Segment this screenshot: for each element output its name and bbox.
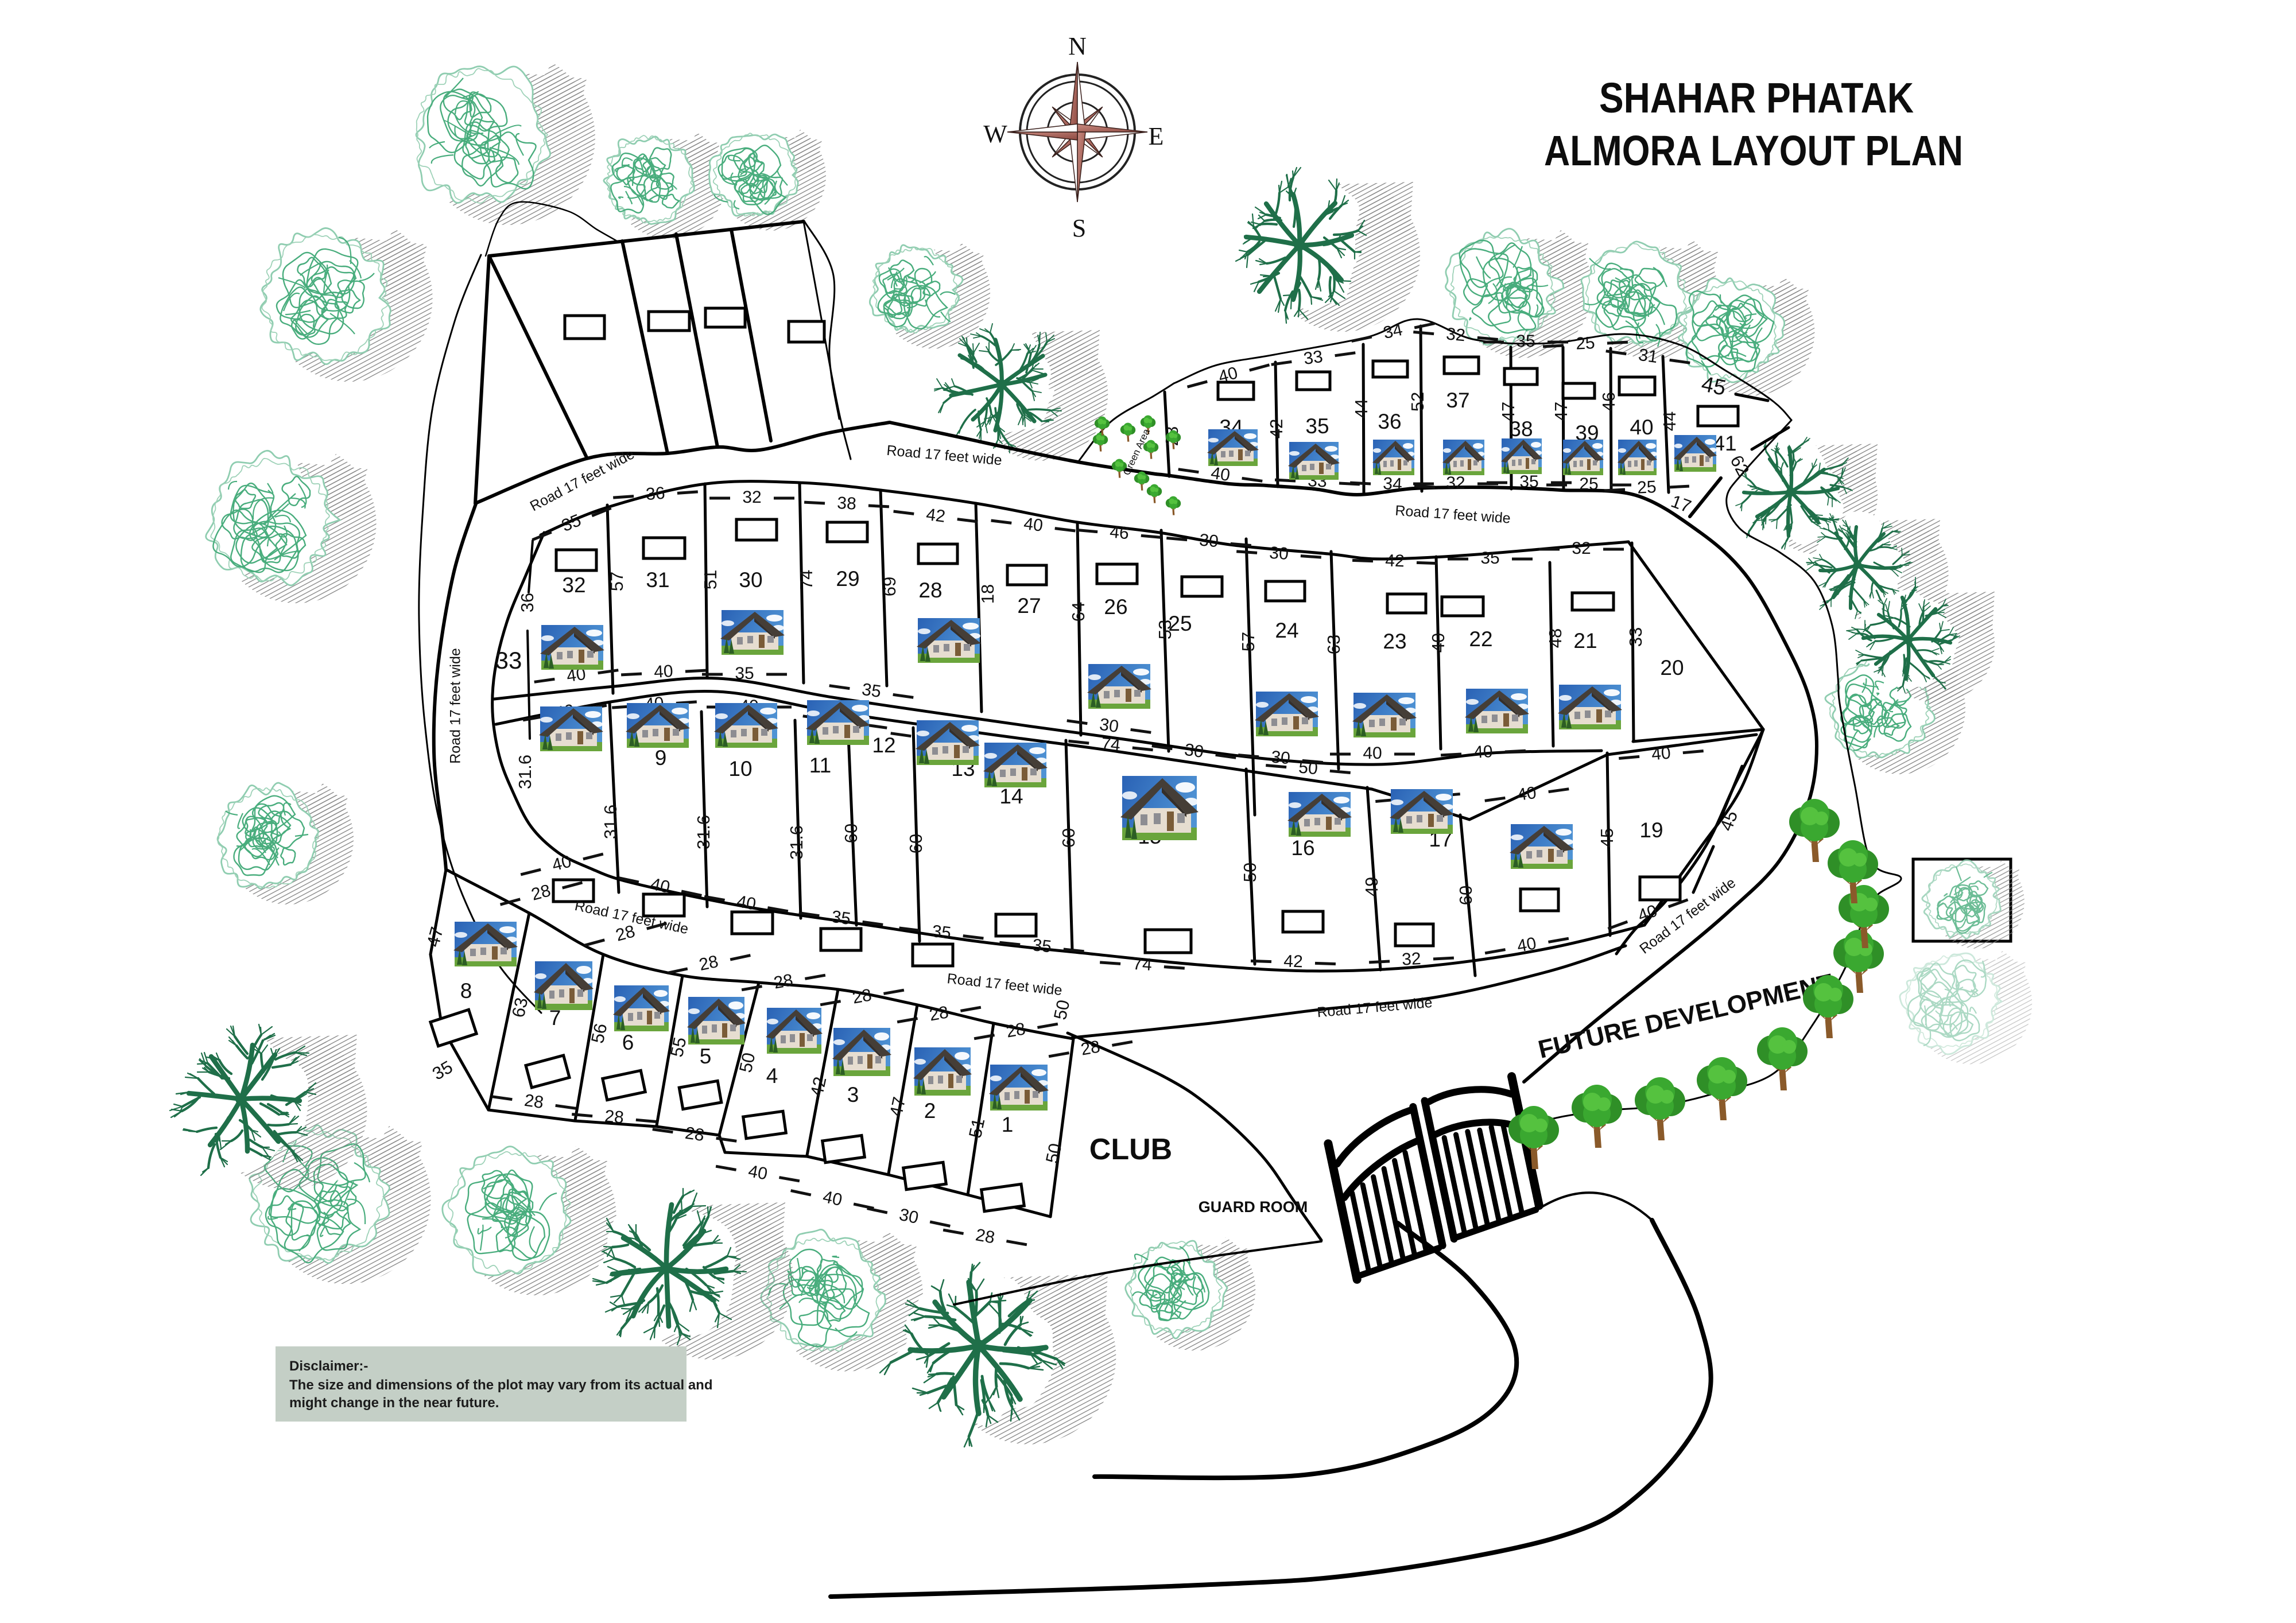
svg-text:28: 28 — [523, 1091, 545, 1112]
svg-text:24: 24 — [1275, 619, 1298, 642]
svg-text:4: 4 — [766, 1064, 778, 1088]
svg-text:28: 28 — [1004, 1019, 1027, 1041]
svg-text:50: 50 — [1298, 758, 1318, 779]
svg-text:32: 32 — [1446, 473, 1465, 492]
svg-text:74: 74 — [796, 570, 816, 589]
svg-text:35: 35 — [931, 922, 952, 943]
svg-text:12: 12 — [872, 733, 895, 757]
svg-text:40: 40 — [1428, 633, 1448, 653]
svg-text:42: 42 — [925, 505, 947, 526]
svg-text:SHAHAR PHATAK: SHAHAR PHATAK — [1599, 74, 1914, 122]
svg-text:74: 74 — [1100, 734, 1122, 755]
svg-text:38: 38 — [1509, 417, 1533, 441]
svg-text:8: 8 — [460, 979, 472, 1003]
svg-text:5: 5 — [700, 1045, 712, 1068]
svg-text:44: 44 — [1659, 411, 1680, 431]
svg-text:38: 38 — [837, 494, 857, 514]
svg-text:CLUB: CLUB — [1089, 1133, 1172, 1166]
svg-text:16: 16 — [1291, 836, 1314, 860]
svg-text:40: 40 — [653, 662, 673, 682]
svg-text:27: 27 — [1017, 594, 1041, 618]
svg-text:40: 40 — [1023, 514, 1044, 535]
svg-text:52: 52 — [1407, 392, 1428, 411]
svg-text:2: 2 — [924, 1099, 936, 1123]
svg-text:ALMORA LAYOUT PLAN: ALMORA LAYOUT PLAN — [1544, 127, 1963, 174]
svg-text:60: 60 — [1058, 828, 1079, 848]
svg-text:E: E — [1149, 122, 1164, 150]
svg-text:Road 17 feet wide: Road 17 feet wide — [448, 648, 464, 764]
svg-text:10: 10 — [728, 757, 752, 781]
svg-text:50: 50 — [1240, 863, 1260, 882]
svg-text:74: 74 — [1132, 954, 1153, 974]
svg-text:50: 50 — [735, 1051, 759, 1074]
svg-text:40: 40 — [1516, 783, 1538, 805]
svg-text:W: W — [983, 120, 1007, 148]
svg-text:31: 31 — [1637, 345, 1659, 367]
svg-text:40: 40 — [1209, 464, 1231, 485]
svg-text:47: 47 — [1551, 402, 1571, 421]
svg-text:50: 50 — [1050, 998, 1073, 1022]
svg-text:55: 55 — [666, 1035, 690, 1059]
svg-text:1: 1 — [1002, 1113, 1014, 1136]
svg-text:51: 51 — [700, 570, 720, 589]
svg-text:19: 19 — [1639, 818, 1663, 842]
svg-text:14: 14 — [999, 785, 1023, 808]
svg-text:28: 28 — [772, 970, 794, 992]
svg-text:The size and dimensions of the: The size and dimensions of the plot may … — [289, 1377, 713, 1393]
svg-text:42: 42 — [806, 1075, 830, 1098]
svg-text:3: 3 — [847, 1083, 859, 1106]
svg-text:31.6: 31.6 — [786, 825, 806, 860]
svg-text:40: 40 — [1473, 742, 1493, 762]
svg-text:32: 32 — [562, 573, 585, 597]
svg-text:32: 32 — [742, 488, 761, 507]
svg-text:22: 22 — [1469, 627, 1492, 651]
svg-text:30: 30 — [1269, 543, 1289, 564]
svg-text:28: 28 — [1079, 1037, 1102, 1059]
svg-text:31: 31 — [646, 568, 669, 592]
svg-text:35: 35 — [830, 907, 852, 929]
svg-text:S: S — [1072, 214, 1086, 242]
svg-text:45: 45 — [1699, 372, 1728, 401]
svg-text:34: 34 — [1383, 474, 1403, 494]
svg-text:21: 21 — [1573, 629, 1597, 653]
svg-text:40: 40 — [1363, 744, 1382, 763]
svg-text:57: 57 — [607, 572, 627, 591]
svg-text:25: 25 — [1579, 475, 1598, 494]
svg-text:N: N — [1068, 32, 1087, 60]
svg-text:28: 28 — [918, 578, 942, 602]
svg-text:49: 49 — [1362, 877, 1382, 896]
svg-text:42: 42 — [1283, 952, 1304, 971]
svg-text:35: 35 — [735, 664, 754, 683]
svg-text:32: 32 — [1572, 539, 1591, 558]
svg-text:35: 35 — [1480, 549, 1499, 568]
svg-text:45: 45 — [1597, 828, 1617, 848]
svg-text:47: 47 — [886, 1095, 909, 1119]
svg-text:25: 25 — [1575, 333, 1595, 354]
svg-text:31.6: 31.6 — [693, 815, 713, 849]
svg-text:44: 44 — [1351, 399, 1371, 418]
svg-text:63: 63 — [508, 996, 532, 1019]
svg-text:31.6: 31.6 — [600, 805, 620, 839]
svg-text:34: 34 — [1382, 320, 1405, 343]
svg-text:11: 11 — [809, 754, 831, 777]
svg-text:26: 26 — [1104, 595, 1127, 619]
svg-text:9: 9 — [655, 746, 667, 770]
svg-text:37: 37 — [1446, 389, 1469, 412]
svg-text:23: 23 — [1383, 630, 1406, 653]
svg-text:30: 30 — [1183, 740, 1205, 762]
svg-text:33: 33 — [1302, 347, 1324, 368]
svg-text:60: 60 — [1456, 886, 1476, 905]
svg-text:63: 63 — [1324, 635, 1344, 654]
svg-text:28: 28 — [974, 1225, 996, 1247]
svg-text:41: 41 — [1713, 432, 1736, 455]
svg-text:30: 30 — [739, 568, 762, 592]
svg-text:36: 36 — [517, 593, 537, 612]
svg-text:69: 69 — [879, 577, 899, 596]
svg-text:20: 20 — [1660, 656, 1684, 680]
svg-text:25: 25 — [1636, 477, 1657, 498]
svg-text:30: 30 — [1199, 531, 1219, 552]
svg-text:42: 42 — [1266, 419, 1286, 438]
svg-text:6: 6 — [622, 1031, 634, 1054]
svg-text:28: 28 — [684, 1124, 705, 1145]
svg-text:56: 56 — [587, 1022, 611, 1045]
svg-text:might change in the near futur: might change in the near future. — [289, 1395, 499, 1411]
svg-text:33: 33 — [1626, 627, 1646, 647]
svg-text:36: 36 — [1378, 410, 1401, 433]
svg-text:40: 40 — [821, 1187, 844, 1210]
svg-text:46: 46 — [1599, 392, 1619, 411]
svg-text:29: 29 — [836, 567, 859, 591]
svg-text:32: 32 — [1401, 949, 1421, 969]
svg-text:GUARD ROOM: GUARD ROOM — [1199, 1198, 1308, 1216]
svg-text:60: 60 — [841, 824, 861, 843]
svg-text:57: 57 — [1238, 632, 1258, 651]
svg-text:40: 40 — [1651, 744, 1671, 764]
svg-text:31.6: 31.6 — [515, 755, 535, 789]
svg-text:46: 46 — [1109, 523, 1130, 543]
svg-text:40: 40 — [747, 1162, 769, 1183]
svg-text:Disclaimer:-: Disclaimer:- — [289, 1358, 368, 1374]
svg-text:33: 33 — [495, 647, 522, 674]
svg-text:40: 40 — [1630, 416, 1653, 439]
svg-text:35: 35 — [1305, 414, 1329, 438]
svg-text:51: 51 — [965, 1116, 988, 1140]
svg-text:32: 32 — [1445, 325, 1466, 345]
svg-text:28: 28 — [697, 952, 720, 974]
svg-text:35: 35 — [1519, 472, 1538, 491]
svg-text:28: 28 — [851, 985, 873, 1007]
svg-text:60: 60 — [906, 834, 926, 853]
svg-text:64: 64 — [1068, 602, 1088, 622]
svg-text:36: 36 — [645, 484, 666, 504]
svg-text:42: 42 — [1385, 551, 1405, 570]
svg-text:18: 18 — [978, 584, 998, 604]
svg-text:25: 25 — [1168, 612, 1192, 635]
svg-text:35: 35 — [1516, 332, 1535, 351]
svg-text:35: 35 — [1031, 935, 1053, 956]
svg-text:30: 30 — [1098, 715, 1120, 736]
svg-text:40: 40 — [1515, 934, 1538, 956]
svg-text:28: 28 — [604, 1107, 625, 1128]
svg-text:50: 50 — [1042, 1141, 1065, 1165]
svg-text:28: 28 — [928, 1003, 950, 1024]
svg-text:30: 30 — [898, 1205, 921, 1228]
svg-text:35: 35 — [860, 680, 882, 701]
svg-text:48: 48 — [1545, 628, 1565, 648]
